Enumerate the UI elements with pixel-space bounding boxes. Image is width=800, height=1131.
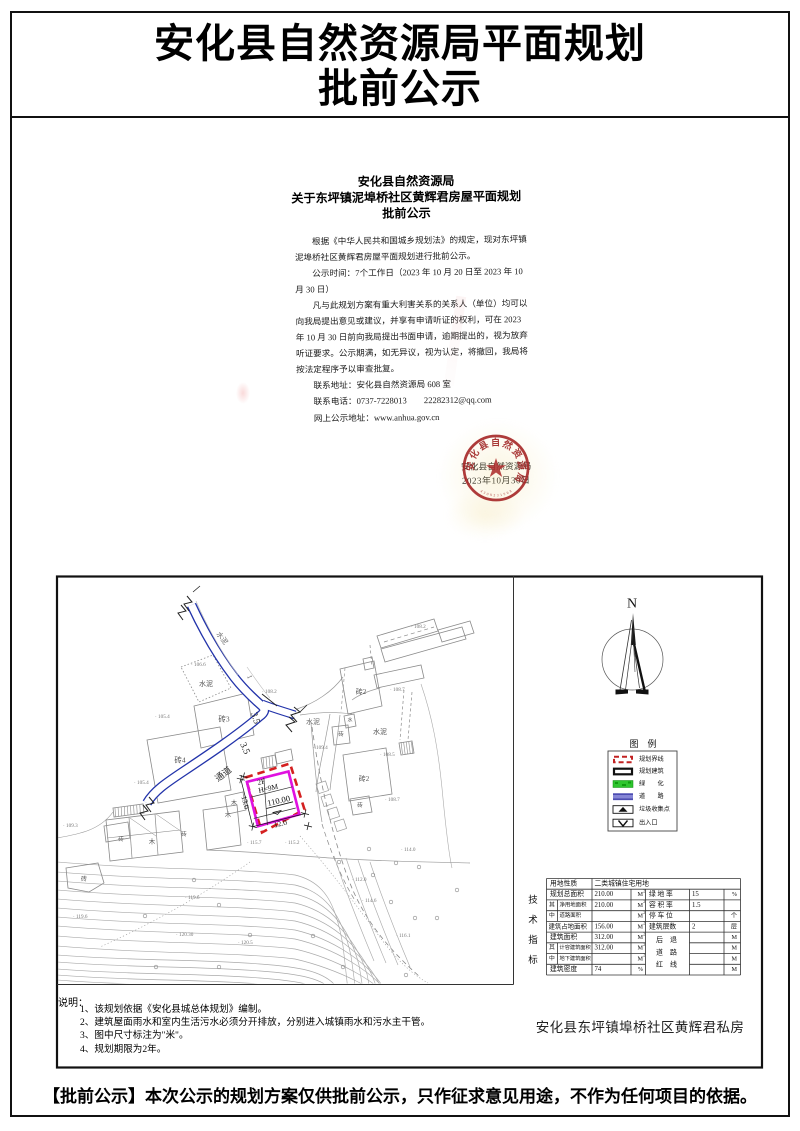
svg-text:砖: 砖 [181,830,187,838]
svg-text:· 114.6: · 114.6 [362,898,377,904]
svg-text:1: 1 [245,674,254,680]
svg-text:道 路: 道 路 [639,792,665,800]
svg-text:绿 化: 绿 化 [639,780,664,788]
svg-text:中: 中 [549,954,555,962]
svg-text:规划总面积: 规划总面积 [550,889,584,898]
svg-text:· 109.3: · 109.3 [63,823,78,829]
svg-text:中: 中 [549,911,555,919]
svg-text:312.00: 312.00 [595,934,614,941]
svg-text:用地性质: 用地性质 [550,878,577,887]
svg-text:砖: 砖 [338,730,344,738]
svg-text:垃圾收集点: 垃圾收集点 [639,805,670,813]
svg-text:2: 2 [643,922,645,926]
svg-text:规划界线: 规划界线 [639,755,664,763]
svg-text:· 105.4: · 105.4 [134,780,149,786]
svg-text:M: M [731,966,737,973]
svg-text:· 108.2: · 108.2 [411,624,426,630]
svg-text:地下建筑面积: 地下建筑面积 [560,954,591,962]
svg-text:指: 指 [528,934,538,946]
svg-text:木: 木 [149,837,156,846]
svg-text:其: 其 [549,900,555,908]
svg-text:二类城镇住宅用地: 二类城镇住宅用地 [595,878,650,887]
svg-text:绿 地 率: 绿 地 率 [649,889,673,898]
svg-text:· 108.7: · 108.7 [390,687,405,693]
svg-text:木: 木 [231,799,237,807]
svg-text:技: 技 [528,894,538,906]
svg-text:M: M [731,955,737,962]
svg-text:%: % [732,891,737,898]
svg-text:2: 2 [643,932,645,936]
svg-text:砖: 砖 [81,875,87,883]
svg-text:· 106.6: · 106.6 [191,662,206,668]
svg-text:M: M [731,934,737,941]
svg-text:图 例: 图 例 [629,738,656,749]
svg-text:2: 2 [643,943,645,947]
svg-text:2: 2 [692,923,696,930]
svg-text:2: 2 [643,900,645,904]
svg-text:水泥: 水泥 [306,717,320,726]
svg-text:13.0: 13.0 [239,795,251,810]
svg-text:· 115.2: · 115.2 [285,840,300,846]
svg-text:其: 其 [549,943,555,951]
svg-text:砖3: 砖3 [218,714,229,724]
svg-text:· 114.0: · 114.0 [401,847,416,853]
svg-text:· 109.4: · 109.4 [313,745,328,751]
svg-text:规划建筑: 规划建筑 [639,767,665,775]
svg-text:· 108.2: · 108.2 [262,689,277,695]
svg-text:建筑占地面积: 建筑占地面积 [549,921,588,930]
svg-text:标: 标 [528,954,538,966]
svg-text:通道: 通道 [212,764,233,784]
svg-text:水泥: 水泥 [373,727,387,736]
svg-text:2: 2 [643,954,645,958]
svg-text:建筑面积: 建筑面积 [550,932,577,941]
svg-text:%: % [638,966,643,973]
svg-text:· 105.4: · 105.4 [155,714,170,720]
svg-text:砖: 砖 [357,801,363,809]
svg-text:容 积 率: 容 积 率 [649,900,673,909]
svg-text:210.00: 210.00 [595,902,614,909]
svg-text:3.5: 3.5 [237,741,251,756]
svg-text:2: 2 [643,911,645,915]
svg-text:156.00: 156.00 [595,923,614,930]
svg-text:· 116.1: · 116.1 [396,933,411,939]
svg-text:砖4: 砖4 [174,755,185,765]
svg-text:砖2: 砖2 [356,687,367,696]
svg-text:15: 15 [692,891,699,898]
svg-text:312.00: 312.00 [595,945,614,952]
svg-text:砖2: 砖2 [359,774,370,783]
svg-text:净用地面积: 净用地面积 [560,900,588,908]
svg-text:N: N [627,597,637,612]
svg-text:· 108.7: · 108.7 [385,797,400,803]
svg-text:74: 74 [595,966,602,973]
svg-text:12.0: 12.0 [273,818,288,830]
svg-text:道路面积: 道路面积 [560,911,582,919]
svg-text:· 120.5: · 120.5 [238,940,253,946]
svg-text:个: 个 [731,913,737,920]
svg-text:后 退: 后 退 [656,935,677,944]
svg-text:建筑密度: 建筑密度 [550,964,577,973]
svg-text:计容建筑面积: 计容建筑面积 [560,943,591,951]
svg-text:M: M [731,945,737,952]
svg-text:建筑层数: 建筑层数 [649,921,676,930]
svg-text:· 115.7: · 115.7 [247,840,262,846]
svg-text:层: 层 [731,923,737,930]
svg-text:出入口: 出入口 [639,819,658,827]
svg-text:道 路: 道 路 [656,947,677,956]
svg-text:· 112.0: · 112.0 [352,877,367,883]
svg-text:水: 水 [347,717,352,724]
svg-text:水泥: 水泥 [199,679,213,688]
svg-text:术: 术 [528,914,538,926]
svg-text:· 120.30: · 120.30 [176,932,194,938]
svg-text:· 119.6: · 119.6 [185,895,200,901]
svg-text:红 线: 红 线 [656,960,677,969]
svg-text:210.00: 210.00 [595,891,614,898]
svg-text:· 119.6: · 119.6 [73,914,88,920]
svg-text:1.5: 1.5 [692,902,701,909]
svg-text:· 108.5: · 108.5 [380,752,395,758]
svg-text:2: 2 [643,889,645,893]
svg-text:停 车 位: 停 车 位 [649,911,673,920]
